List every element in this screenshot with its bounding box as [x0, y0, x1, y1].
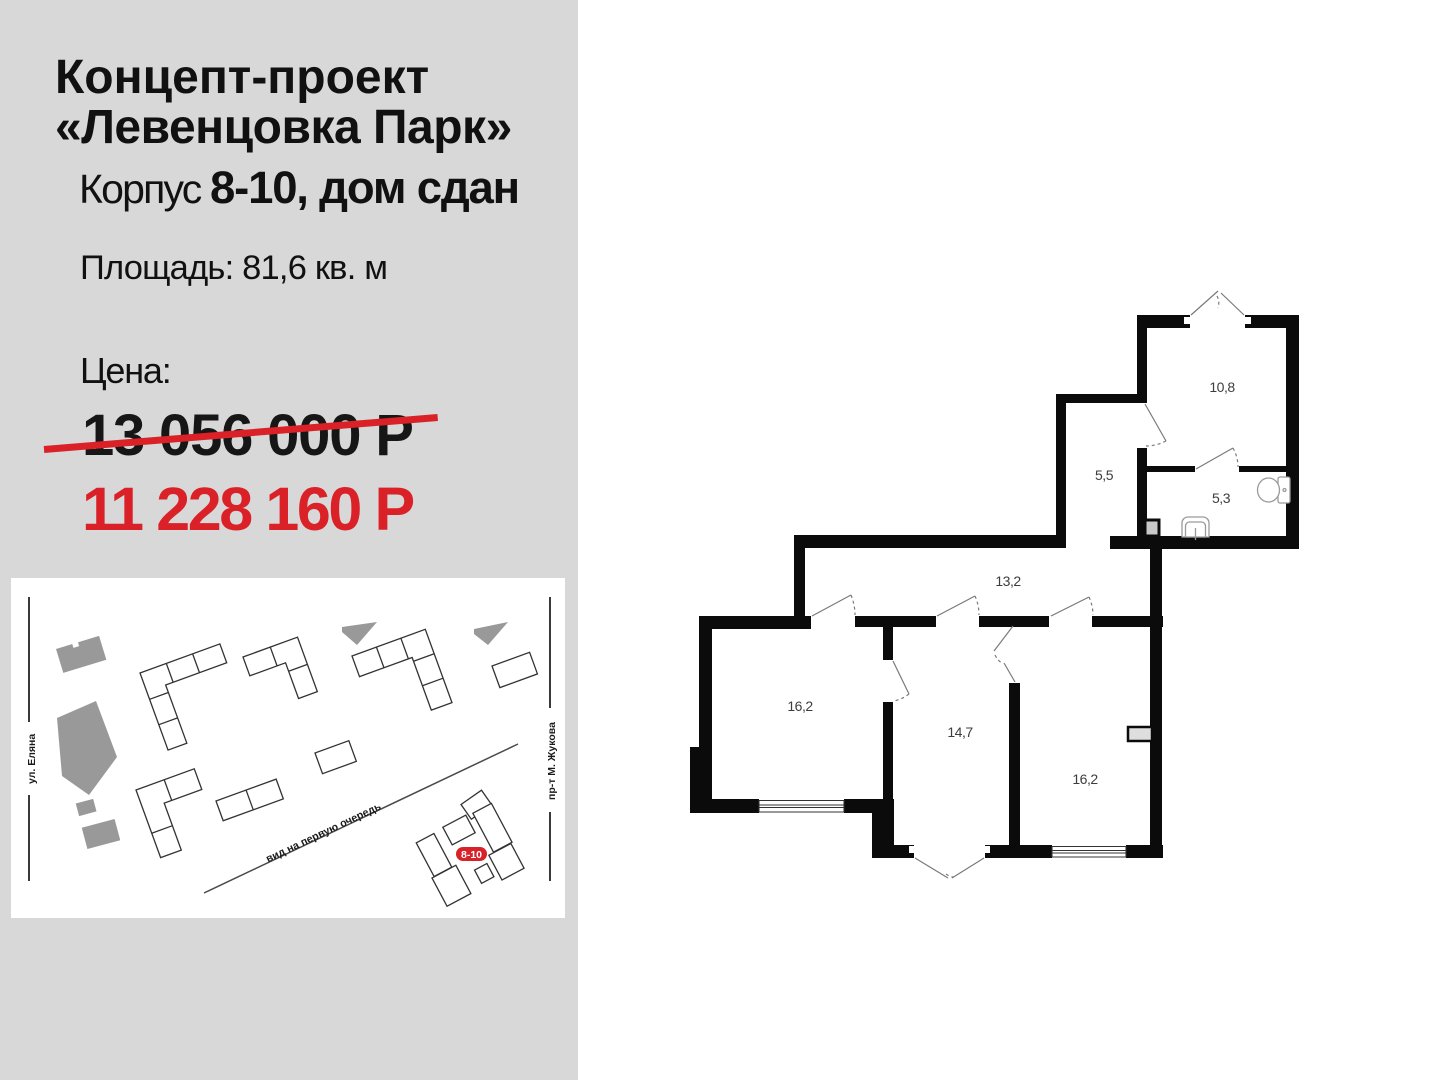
- svg-text:8-10: 8-10: [461, 849, 482, 861]
- svg-text:ул. Еляна: ул. Еляна: [26, 734, 38, 784]
- svg-text:13,2: 13,2: [995, 573, 1021, 589]
- svg-text:пр-т М. Жукова: пр-т М. Жукова: [546, 722, 558, 800]
- svg-text:вид на первую очередь: вид на первую очередь: [264, 800, 383, 865]
- svg-text:5,3: 5,3: [1212, 490, 1231, 506]
- svg-text:14,7: 14,7: [947, 724, 973, 740]
- svg-text:10,8: 10,8: [1209, 379, 1235, 395]
- svg-text:16,2: 16,2: [1072, 771, 1098, 787]
- svg-text:16,2: 16,2: [787, 698, 813, 714]
- svg-text:5,5: 5,5: [1095, 467, 1114, 483]
